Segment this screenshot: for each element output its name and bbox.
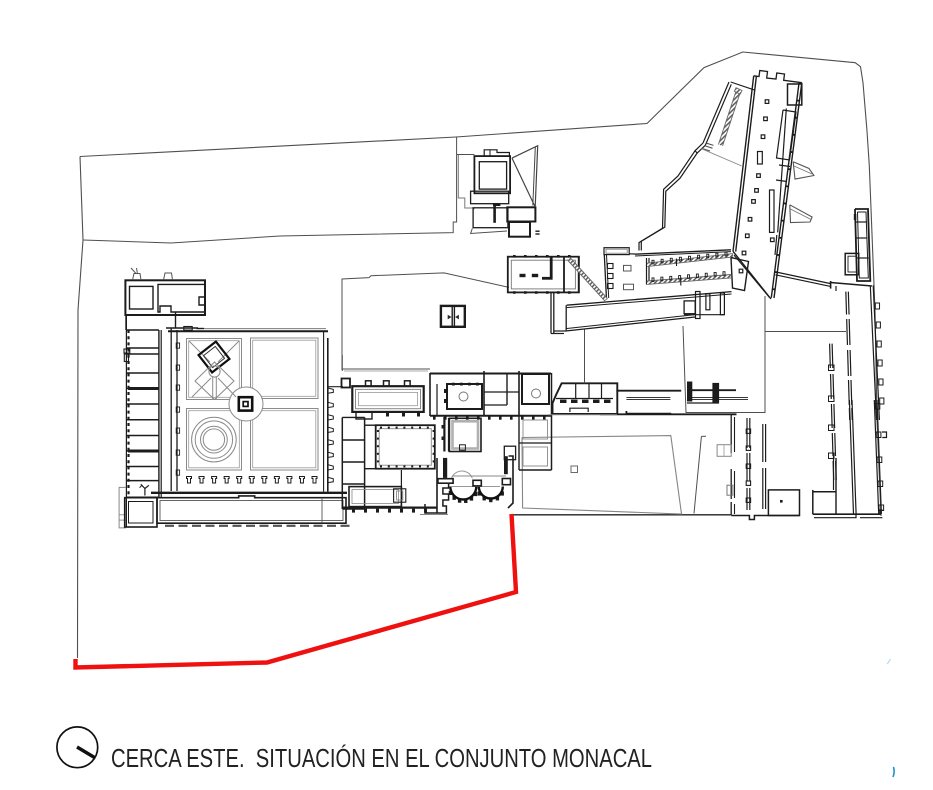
svg-text:CERCA ESTE. SITUACIÓN EN EL C: CERCA ESTE. SITUACIÓN EN EL CONJUNTO MON… [111,743,652,773]
